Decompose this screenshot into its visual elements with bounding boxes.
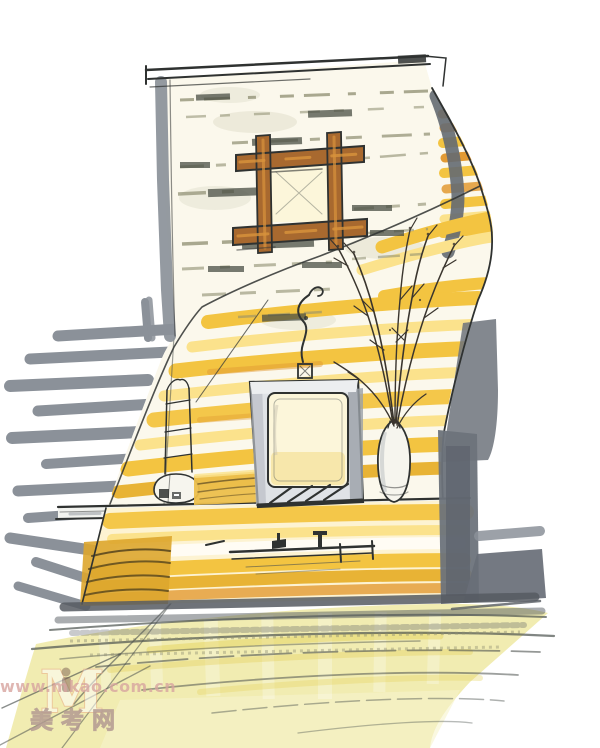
cabinet-left-shading — [80, 536, 172, 606]
sketch-canvas: M www.mkao.com.cn 美考网 — [0, 0, 600, 748]
cabinet — [80, 500, 470, 606]
watermark-site-name: 美考网 — [30, 707, 123, 734]
watermark-url: www.mkao.com.cn — [0, 677, 176, 696]
interior-sketch: M www.mkao.com.cn 美考网 — [0, 0, 600, 748]
watermark-figure-icon — [62, 668, 71, 677]
mirror-frame — [250, 364, 363, 507]
vase — [378, 420, 410, 502]
pendant-head — [304, 316, 308, 320]
